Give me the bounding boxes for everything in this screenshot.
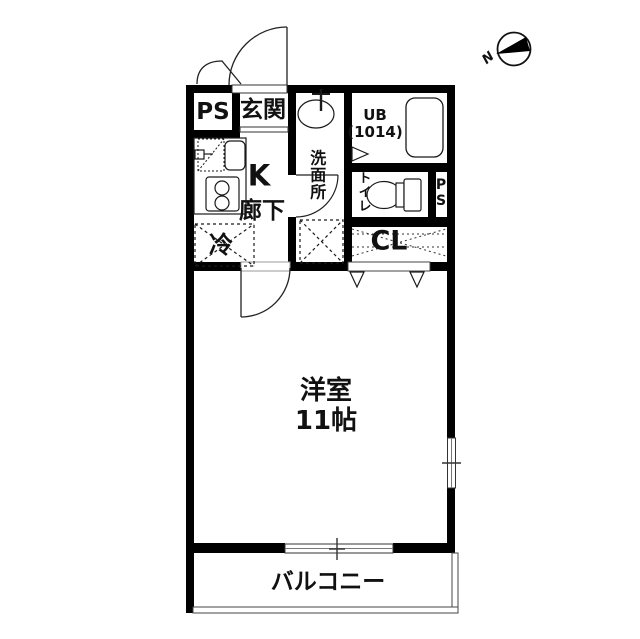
floorplan-linework (0, 0, 640, 639)
bathtub (406, 98, 443, 157)
toilet-fixture (367, 179, 421, 211)
compass-icon (496, 33, 531, 66)
side-window (442, 438, 461, 488)
label-ps-top: PS (196, 99, 229, 125)
label-main-room: 洋室 11帖 (295, 377, 357, 437)
label-toilet: トイレ (355, 171, 370, 213)
washbasin (298, 89, 334, 128)
label-unit-bath: UB (1014) (347, 107, 402, 142)
entrance-doorway-frame (232, 85, 287, 93)
room-door-arc (241, 268, 290, 317)
label-balcony: バルコニー (271, 569, 386, 595)
label-closet: CL (370, 225, 407, 256)
entrance-door-arc (197, 27, 287, 85)
washer-box (300, 220, 343, 263)
bath-door-mark (352, 147, 368, 161)
closet-door-panel (348, 262, 430, 287)
label-washroom: 洗面所 (307, 150, 325, 201)
label-hallway: 廊下 (239, 198, 285, 224)
room-doorway-frame (241, 262, 290, 271)
label-refrigerator: 冷 (209, 232, 233, 260)
entrance-step-line (240, 127, 288, 132)
label-kitchen: K (248, 159, 270, 192)
label-ps-right: PS (433, 177, 449, 209)
balcony-sliding-window (285, 538, 393, 560)
floor-plan: PS 玄関 UB (1014) 洗面所 K 廊下 トイレ PS 冷 CL 洋室 … (0, 0, 640, 639)
label-entrance: 玄関 (240, 97, 286, 123)
